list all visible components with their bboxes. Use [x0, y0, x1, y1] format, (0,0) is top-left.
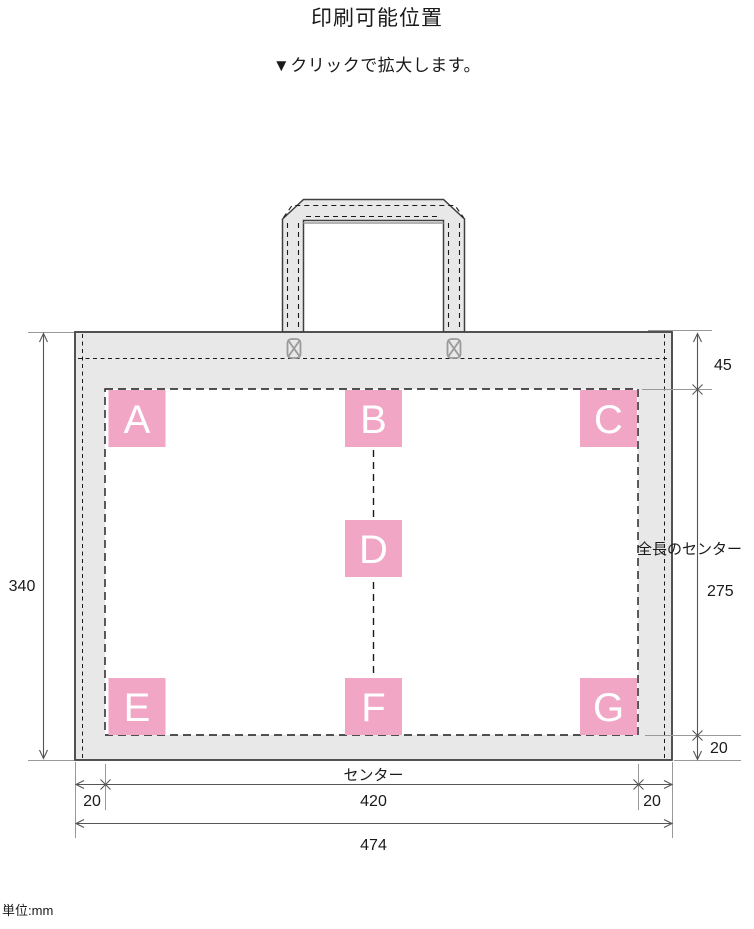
bag-handle	[283, 200, 465, 333]
position-a-label: A	[124, 398, 151, 442]
position-b-label: B	[360, 398, 387, 442]
bag-diagram-svg: A B C D E F G	[0, 0, 754, 924]
dim-left-margin: 20	[83, 793, 101, 810]
dim-bag-height: 340	[9, 578, 36, 595]
position-c-label: C	[594, 398, 623, 442]
position-c[interactable]: C	[580, 390, 637, 447]
dim-right-margin: 20	[643, 793, 661, 810]
position-d-label: D	[359, 528, 388, 572]
position-d[interactable]: D	[345, 520, 402, 577]
position-e[interactable]: E	[109, 678, 166, 735]
position-f[interactable]: F	[345, 678, 402, 735]
position-f-label: F	[361, 686, 385, 730]
position-g[interactable]: G	[580, 678, 637, 735]
dim-print-height: 275	[707, 583, 734, 600]
position-a[interactable]: A	[109, 390, 166, 447]
dim-print-width: 420	[360, 793, 387, 810]
bag-diagram[interactable]: A B C D E F G	[0, 0, 754, 924]
dim-top-margin: 45	[714, 357, 732, 374]
dim-bag-width: 474	[360, 837, 387, 854]
handle-stitch-lines	[284, 206, 464, 331]
position-b[interactable]: B	[345, 390, 402, 447]
position-e-label: E	[124, 686, 151, 730]
position-g-label: G	[593, 686, 624, 730]
full-length-center-label: 全長のセンター	[637, 540, 742, 558]
center-label: センター	[343, 767, 403, 784]
unit-note: 単位:mm	[2, 900, 53, 919]
handle-outline	[283, 200, 465, 333]
dim-bottom-margin: 20	[710, 740, 728, 757]
